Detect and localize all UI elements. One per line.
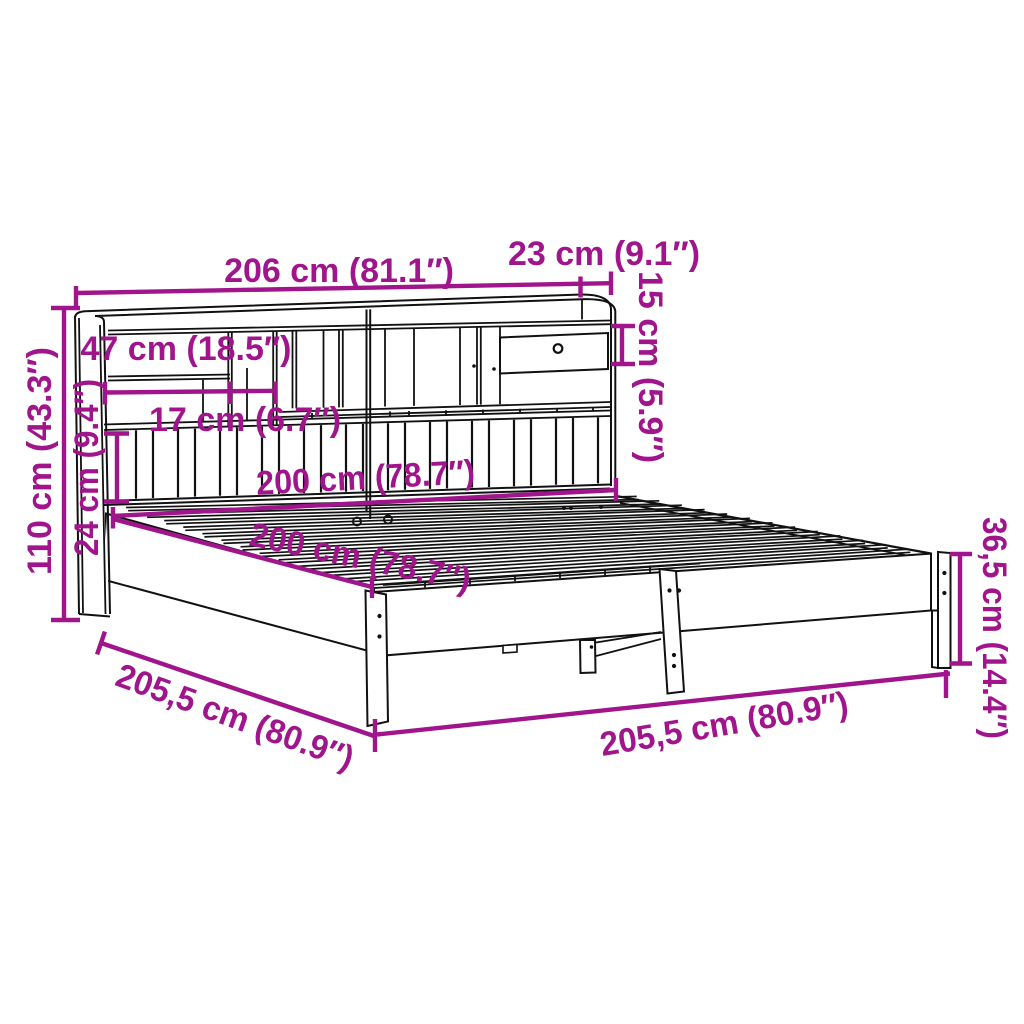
- svg-text:23 cm (9.1″): 23 cm (9.1″): [508, 235, 700, 273]
- svg-text:47 cm (18.5″): 47 cm (18.5″): [81, 330, 292, 368]
- svg-text:24 cm (9.4″): 24 cm (9.4″): [68, 379, 106, 556]
- svg-text:36,5 cm (14.4″): 36,5 cm (14.4″): [975, 517, 1013, 739]
- svg-text:17 cm (6.7″): 17 cm (6.7″): [149, 401, 341, 439]
- svg-text:110 cm (43.3″): 110 cm (43.3″): [21, 347, 59, 575]
- svg-text:206 cm (81.1″): 206 cm (81.1″): [224, 252, 454, 290]
- svg-text:15 cm (5.9″): 15 cm (5.9″): [631, 271, 669, 463]
